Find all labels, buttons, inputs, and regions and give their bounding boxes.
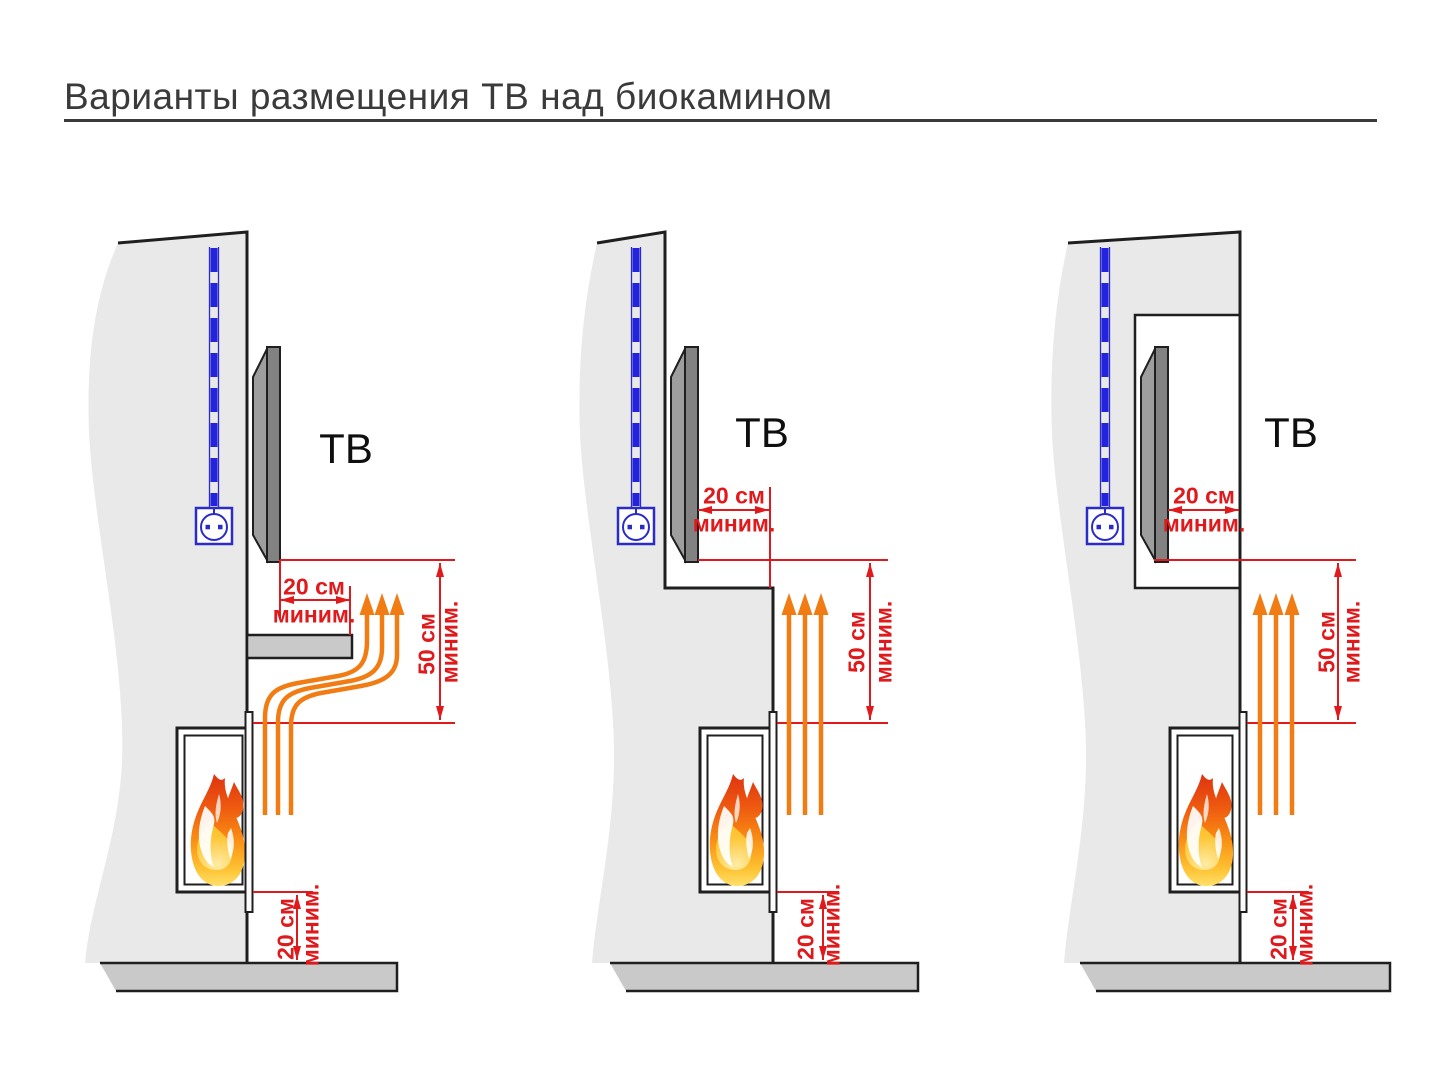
floor-gap-value: 20 см [273, 898, 300, 960]
title-underline [64, 119, 1377, 122]
front-gap-qualifier: миним. [1163, 511, 1246, 538]
floor-slab [100, 963, 397, 991]
power-outlet-icon [618, 508, 654, 544]
power-outlet-icon [196, 508, 232, 544]
tv-label: ТВ [1264, 409, 1318, 457]
fireplace-glass [1240, 712, 1247, 912]
above-fire-qualifier: миним. [871, 601, 898, 684]
deflector-shelf [247, 635, 352, 658]
above-fire-qualifier: миним. [1339, 601, 1366, 684]
above-fire-qualifier: миним. [437, 601, 464, 684]
tv-label: ТВ [319, 425, 373, 473]
floor-slab [610, 963, 918, 991]
power-outlet-icon [1087, 508, 1123, 544]
above-fire-value: 50 см [844, 611, 871, 673]
heat-arrows [1260, 614, 1292, 815]
diagram-1 [85, 232, 455, 991]
floor-slab [1080, 963, 1390, 991]
floor-gap-value: 20 см [793, 898, 820, 960]
tv-panel [253, 347, 280, 562]
front-gap-qualifier: миним. [273, 602, 356, 629]
page-title: Варианты размещения ТВ над биокамином [64, 76, 833, 119]
heat-arrows [789, 614, 821, 815]
above-fire-value: 50 см [1314, 611, 1341, 673]
floor-gap-qualifier: миним. [298, 884, 325, 967]
front-gap-qualifier: миним. [693, 511, 776, 538]
floor-gap-qualifier: миним. [819, 884, 846, 967]
floor-gap-qualifier: миним. [1292, 884, 1319, 967]
page: Варианты размещения ТВ над биокамином ТВ… [0, 0, 1440, 1080]
front-gap-value: 20 см [283, 574, 345, 601]
front-gap-value: 20 см [1173, 483, 1235, 510]
front-gap-value: 20 см [703, 483, 765, 510]
fireplace-glass [246, 712, 253, 912]
diagram-canvas [0, 0, 1440, 1080]
tv-label: ТВ [735, 409, 789, 457]
floor-gap-value: 20 см [1266, 898, 1293, 960]
fireplace-glass [770, 712, 777, 912]
